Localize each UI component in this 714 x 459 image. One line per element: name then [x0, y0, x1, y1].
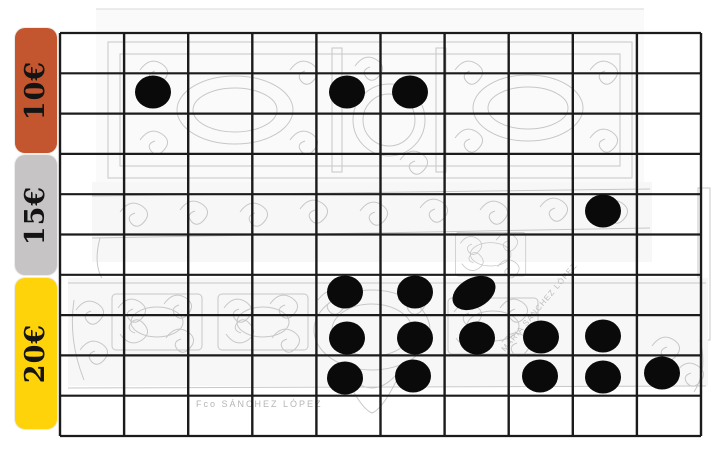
token-20eur-c8r9[interactable] — [522, 360, 558, 393]
token-20eur-c5r9[interactable] — [327, 362, 363, 395]
price-tier-10-label: 10€ — [15, 28, 57, 153]
token-20eur-c6r9[interactable] — [395, 360, 431, 393]
price-tier-15-label: 15€ — [15, 155, 57, 275]
token-15eur-c9r5[interactable] — [585, 195, 621, 228]
auction-price-board: Fco SÁNCHEZ LÓPEZ MARIA SÁNCHEZ LÓPEZ 10… — [0, 0, 714, 459]
token-10eur-c5r2[interactable] — [329, 76, 365, 109]
grid-and-tokens-layer — [0, 0, 714, 459]
token-20eur-c6r7[interactable] — [397, 276, 433, 309]
token-20eur-c7r8[interactable] — [459, 322, 495, 355]
token-20eur-c7r7[interactable] — [447, 269, 502, 317]
price-tier-20-label: 20€ — [15, 278, 57, 429]
price-tier-10-text: 10€ — [21, 61, 52, 120]
price-tier-20-text: 20€ — [21, 324, 52, 383]
token-20eur-c5r7[interactable] — [327, 276, 363, 309]
token-20eur-c10r9[interactable] — [644, 357, 680, 390]
token-10eur-c6r2[interactable] — [392, 76, 428, 109]
token-20eur-c8r8[interactable] — [523, 321, 559, 354]
token-20eur-c6r8[interactable] — [397, 322, 433, 355]
price-tier-15-text: 15€ — [21, 185, 52, 244]
token-20eur-c9r8[interactable] — [585, 320, 621, 353]
token-20eur-c9r9[interactable] — [585, 361, 621, 394]
token-10eur-c2r2[interactable] — [135, 76, 171, 109]
token-20eur-c5r8[interactable] — [329, 322, 365, 355]
